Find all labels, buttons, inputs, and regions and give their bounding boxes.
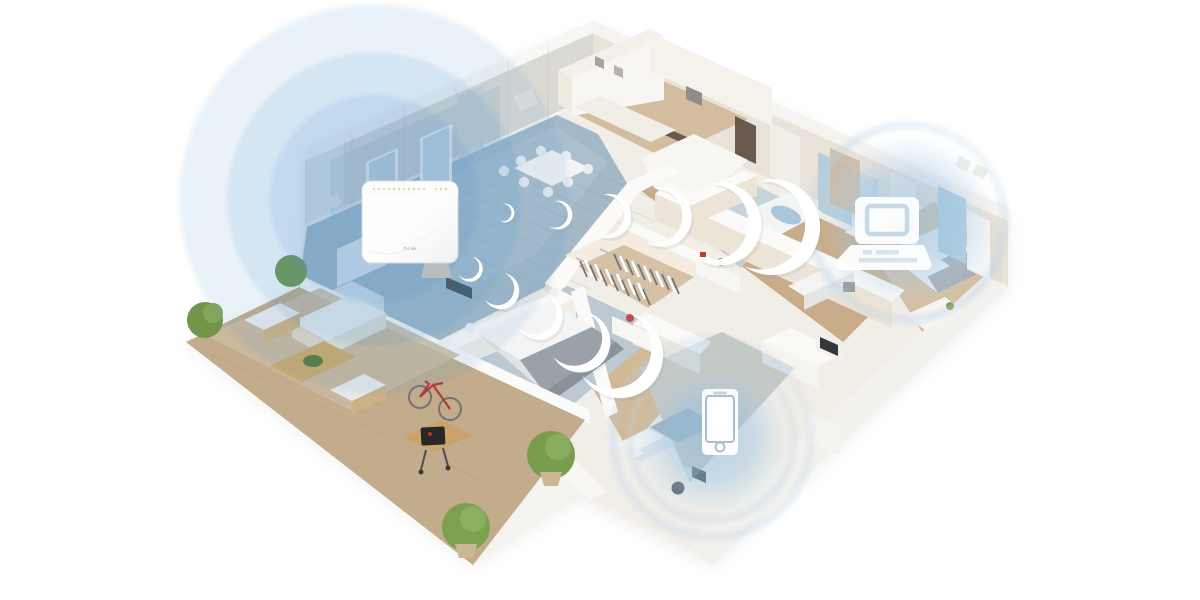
svg-text:D-Link: D-Link — [403, 246, 417, 251]
